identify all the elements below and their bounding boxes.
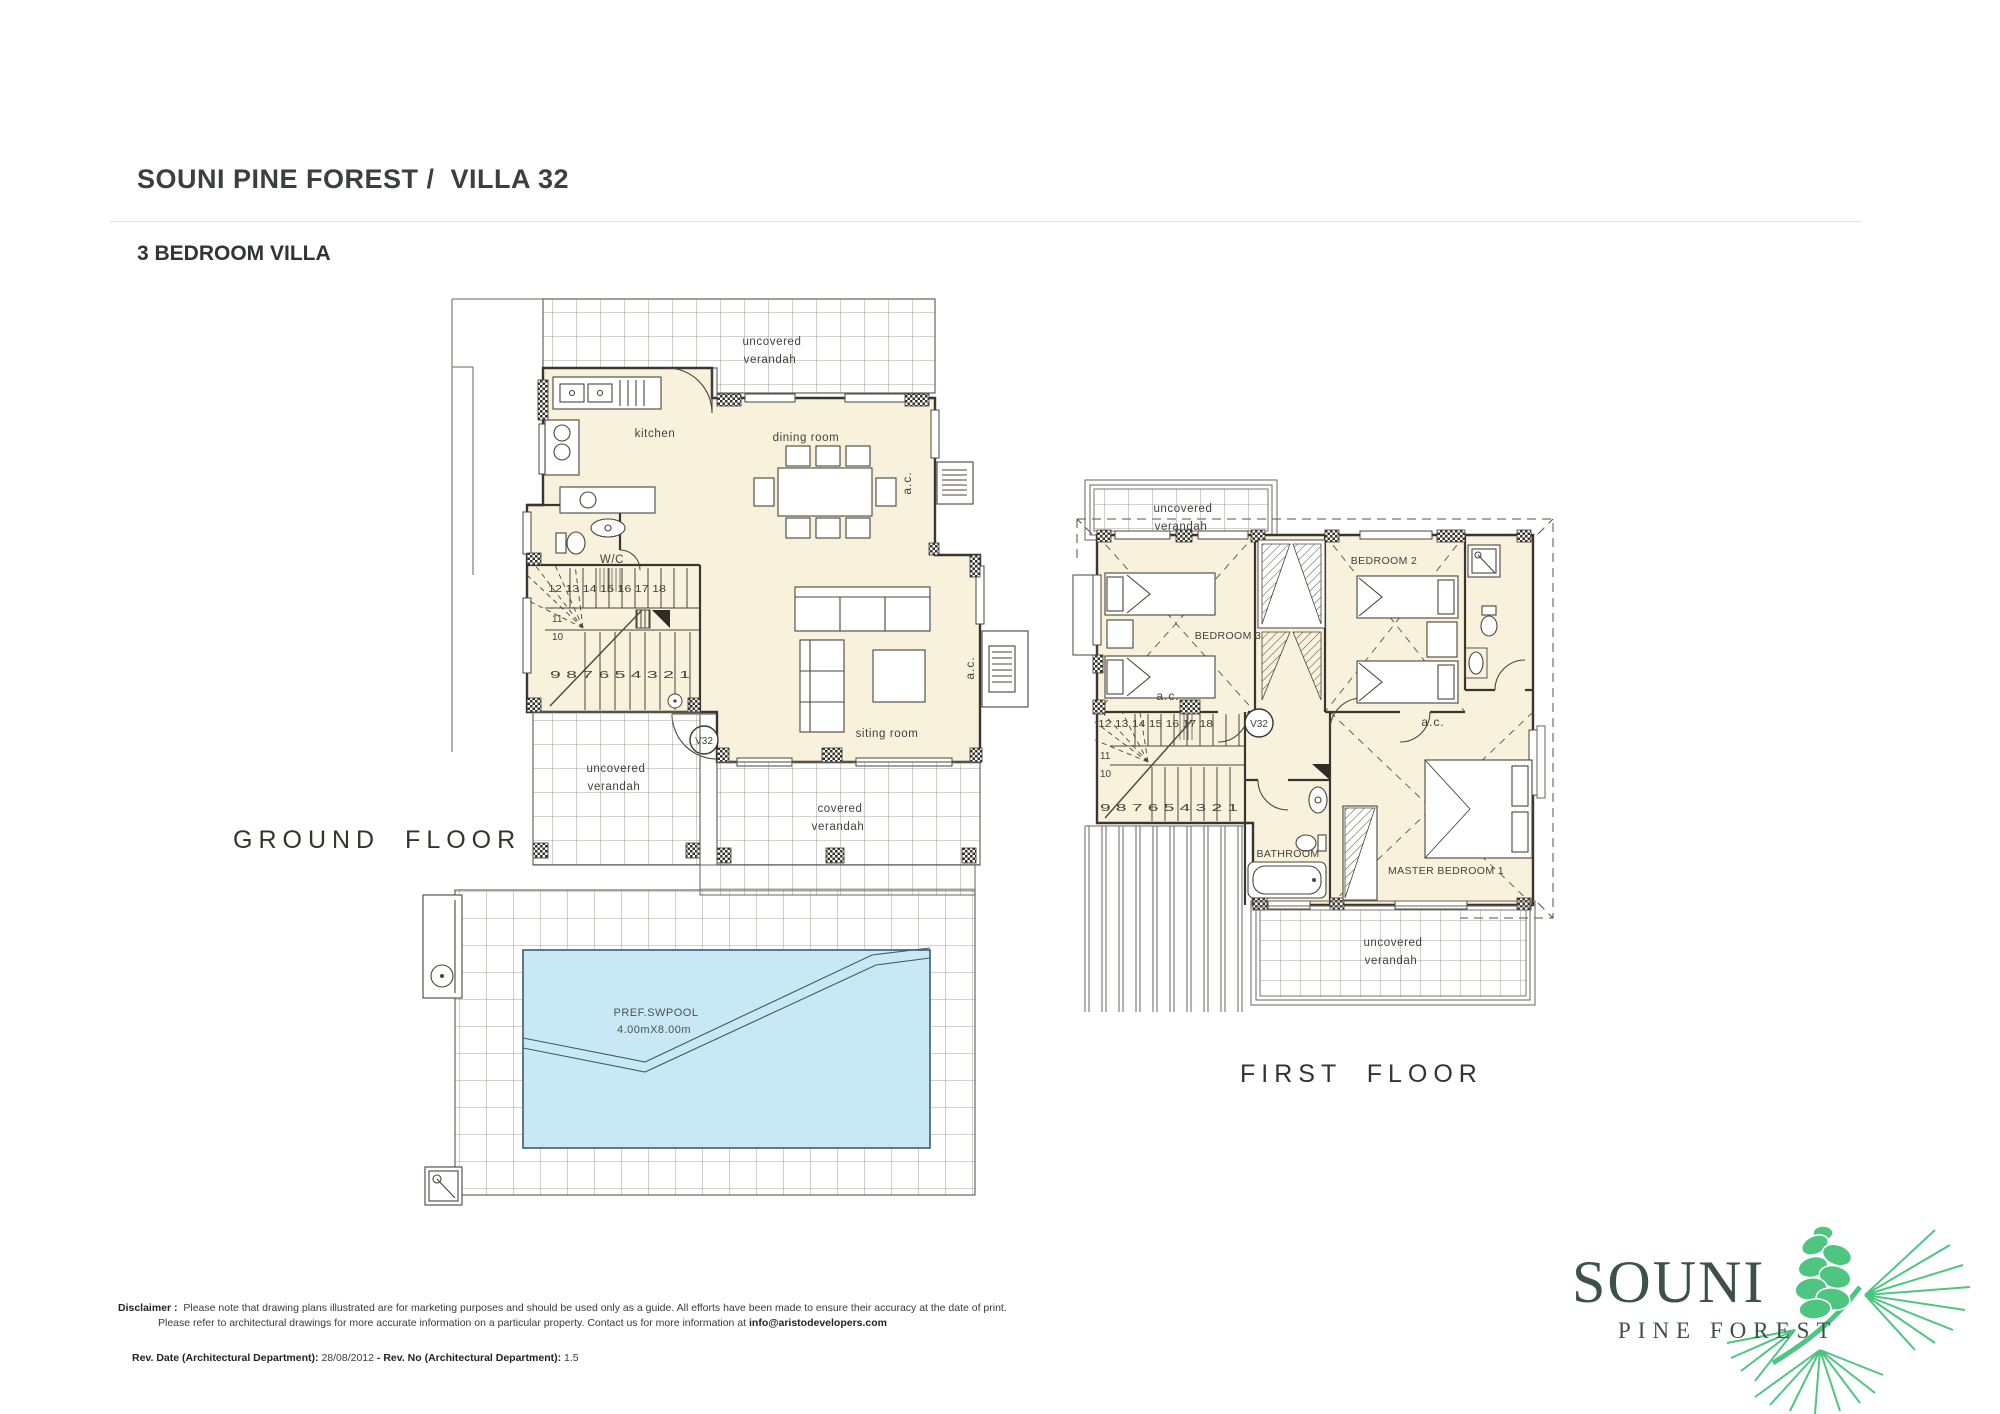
gf-sitting-ac-unit	[982, 631, 1028, 707]
floor-plans-drawing: uncovered verandah	[0, 0, 2000, 1414]
revision-date: 28/08/2012	[321, 1352, 374, 1364]
ff-stairs-step-11: 11	[1100, 751, 1111, 762]
ground-floor-title: GROUND FLOOR	[233, 826, 521, 855]
gf-sitting-ac-label: a.c.	[963, 656, 977, 679]
gf-stairs-upper-numbers: 12 13 14 15 16 17 18	[548, 584, 667, 595]
gf-top-verandah-label-1: uncovered	[742, 336, 801, 348]
ff-bottom-verandah	[1251, 901, 1535, 1005]
gf-wc-label: W/C	[600, 554, 624, 566]
gf-dining-ac-label: a.c.	[900, 471, 914, 494]
ff-bedroom3-label: BEDROOM 3	[1195, 630, 1262, 642]
contact-email: info@aristodevelopers.com	[749, 1317, 887, 1329]
revision-line: Rev. Date (Architectural Department): 28…	[132, 1352, 579, 1364]
ff-pergola-slats	[1085, 826, 1245, 1012]
floor-plan-sheet: SOUNI PINE FOREST / VILLA 32 3 BEDROOM V…	[0, 0, 2000, 1414]
ground-floor-plan: uncovered verandah	[423, 299, 1028, 1205]
revision-number: 1.5	[564, 1352, 579, 1364]
ff-bathroom-label: BATHROOM	[1256, 848, 1319, 860]
ff-stairs-step-10: 10	[1100, 769, 1112, 780]
gf-stairs-step-11: 11	[552, 614, 563, 625]
disclaimer-line-1: Disclaimer : Please note that drawing pl…	[118, 1302, 1007, 1314]
gf-top-verandah-label-2: verandah	[744, 354, 797, 366]
gf-dining-ac-unit	[937, 462, 973, 504]
gf-kitchen-label: kitchen	[635, 428, 676, 440]
disclaimer-line-2: Please refer to architectural drawings f…	[158, 1317, 887, 1329]
ff-window-sill	[1537, 726, 1545, 798]
ff-bedroom3-ac-label: a.c.	[1156, 689, 1179, 703]
gf-left-verandah-label-1: uncovered	[586, 763, 645, 775]
ff-master-label: MASTER BEDROOM 1	[1388, 865, 1504, 877]
gf-sitting-label: siting room	[856, 728, 919, 740]
pool-size-label: 4.00mX8.00m	[617, 1024, 691, 1036]
ff-bottom-verandah-label-2: verandah	[1365, 955, 1418, 967]
gf-covered-verandah-label-2: verandah	[812, 821, 865, 833]
first-floor-plan: uncovered verandah	[1073, 480, 1553, 1012]
ff-bedroom2-label: BEDROOM 2	[1351, 555, 1418, 567]
gf-stairs-step-10: 10	[552, 632, 564, 643]
ff-top-verandah-label-1: uncovered	[1153, 503, 1212, 515]
ff-stairs-lower-numbers: 9 8 7 6 5 4 3 2 1	[1100, 803, 1239, 814]
gf-stairs-lower-numbers: 9 8 7 6 5 4 3 2 1	[550, 670, 691, 681]
gf-dining-label: dining room	[773, 432, 840, 444]
ff-villa-tag: V32	[1250, 719, 1268, 730]
ff-bottom-verandah-label-1: uncovered	[1363, 937, 1422, 949]
gf-left-verandah-label-2: verandah	[588, 781, 641, 793]
first-floor-title: FIRST FLOOR	[1240, 1060, 1483, 1089]
swimming-pool	[523, 950, 930, 1148]
gf-entry-column-dot	[673, 699, 676, 702]
pool-name-label: PREF.SWPOOL	[614, 1007, 699, 1019]
logo-brand-text: SOUNI	[1572, 1248, 1765, 1317]
logo-tagline-text: PINE FOREST	[1618, 1318, 1838, 1344]
disclaimer-label: Disclaimer :	[118, 1302, 178, 1314]
ff-stairs-upper-numbers: 12 13 14 15 16 17 18	[1098, 719, 1214, 730]
ff-bedroom2-ac-label: a.c.	[1421, 715, 1444, 729]
gf-covered-verandah-label-1: covered	[817, 803, 862, 815]
